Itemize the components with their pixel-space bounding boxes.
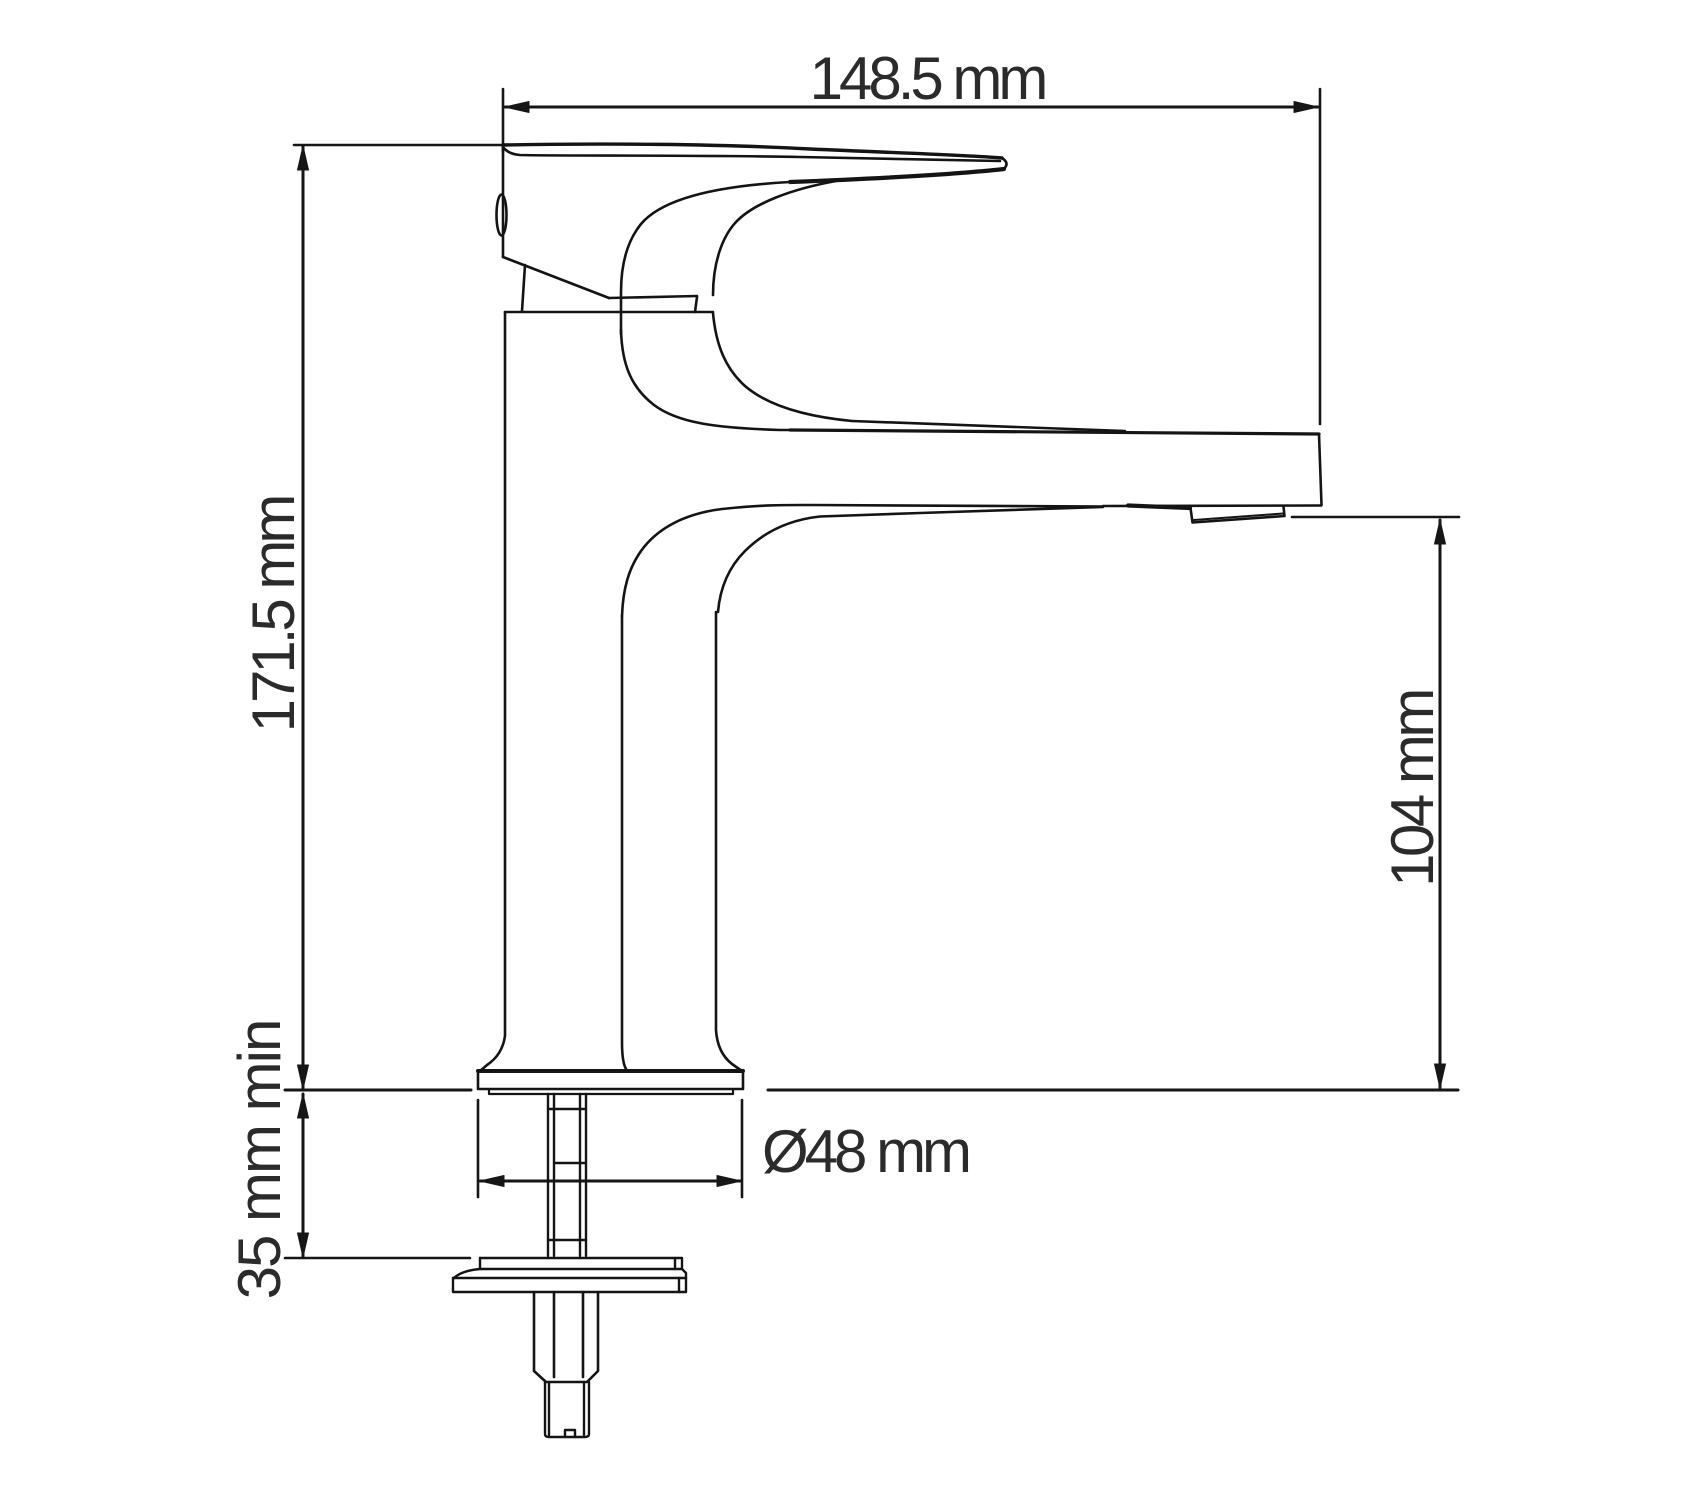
svg-text:148.5 mm: 148.5 mm xyxy=(810,45,1046,112)
svg-text:35 mm min: 35 mm min xyxy=(226,1021,293,1300)
svg-text:104 mm: 104 mm xyxy=(1379,691,1446,887)
svg-text:171.5 mm: 171.5 mm xyxy=(240,497,307,733)
svg-text:Ø48 mm: Ø48 mm xyxy=(762,1118,969,1185)
